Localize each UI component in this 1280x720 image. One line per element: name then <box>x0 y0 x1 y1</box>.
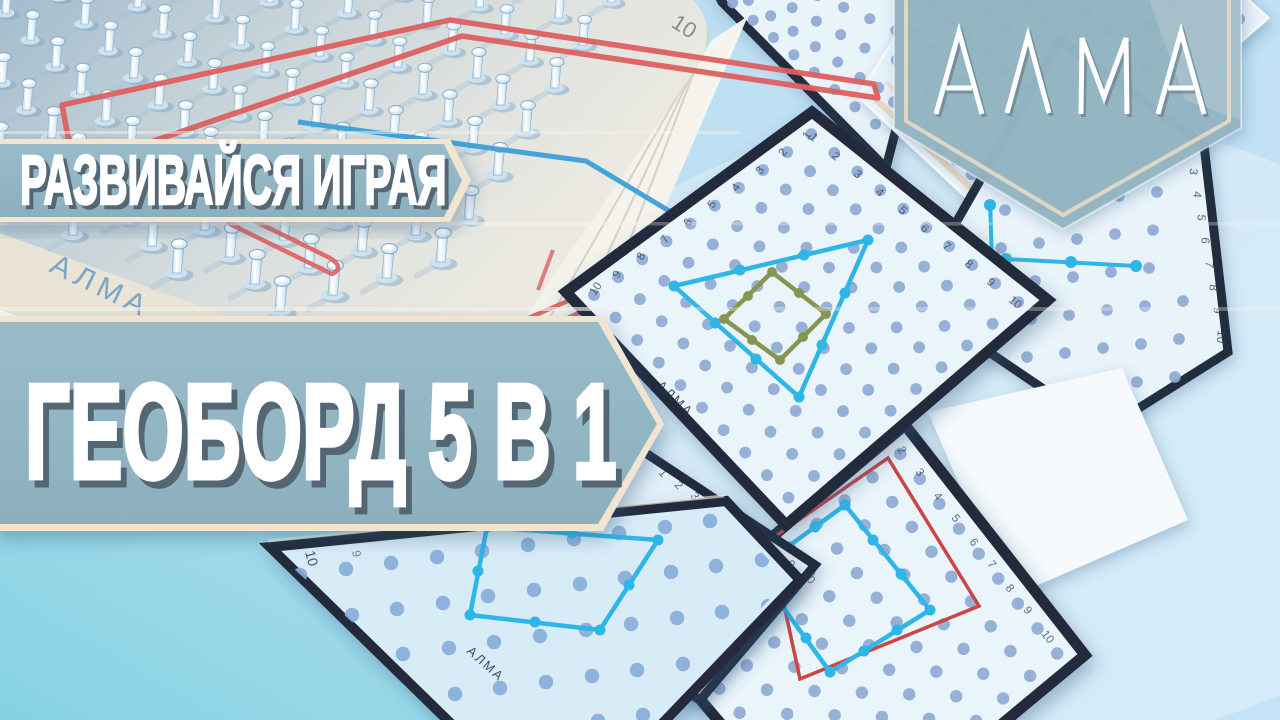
svg-text:ГЕОБОРД 5 В 1: ГЕОБОРД 5 В 1 <box>25 357 617 507</box>
svg-text:10: 10 <box>1214 330 1227 344</box>
svg-text:5: 5 <box>1194 214 1207 222</box>
svg-text:РАЗВИВАЙСЯ ИГРАЯ: РАЗВИВАЙСЯ ИГРАЯ <box>20 140 447 220</box>
svg-text:8: 8 <box>1206 284 1219 292</box>
svg-text:6: 6 <box>1198 237 1211 245</box>
svg-text:3: 3 <box>1186 168 1199 176</box>
svg-text:7: 7 <box>1202 261 1215 269</box>
